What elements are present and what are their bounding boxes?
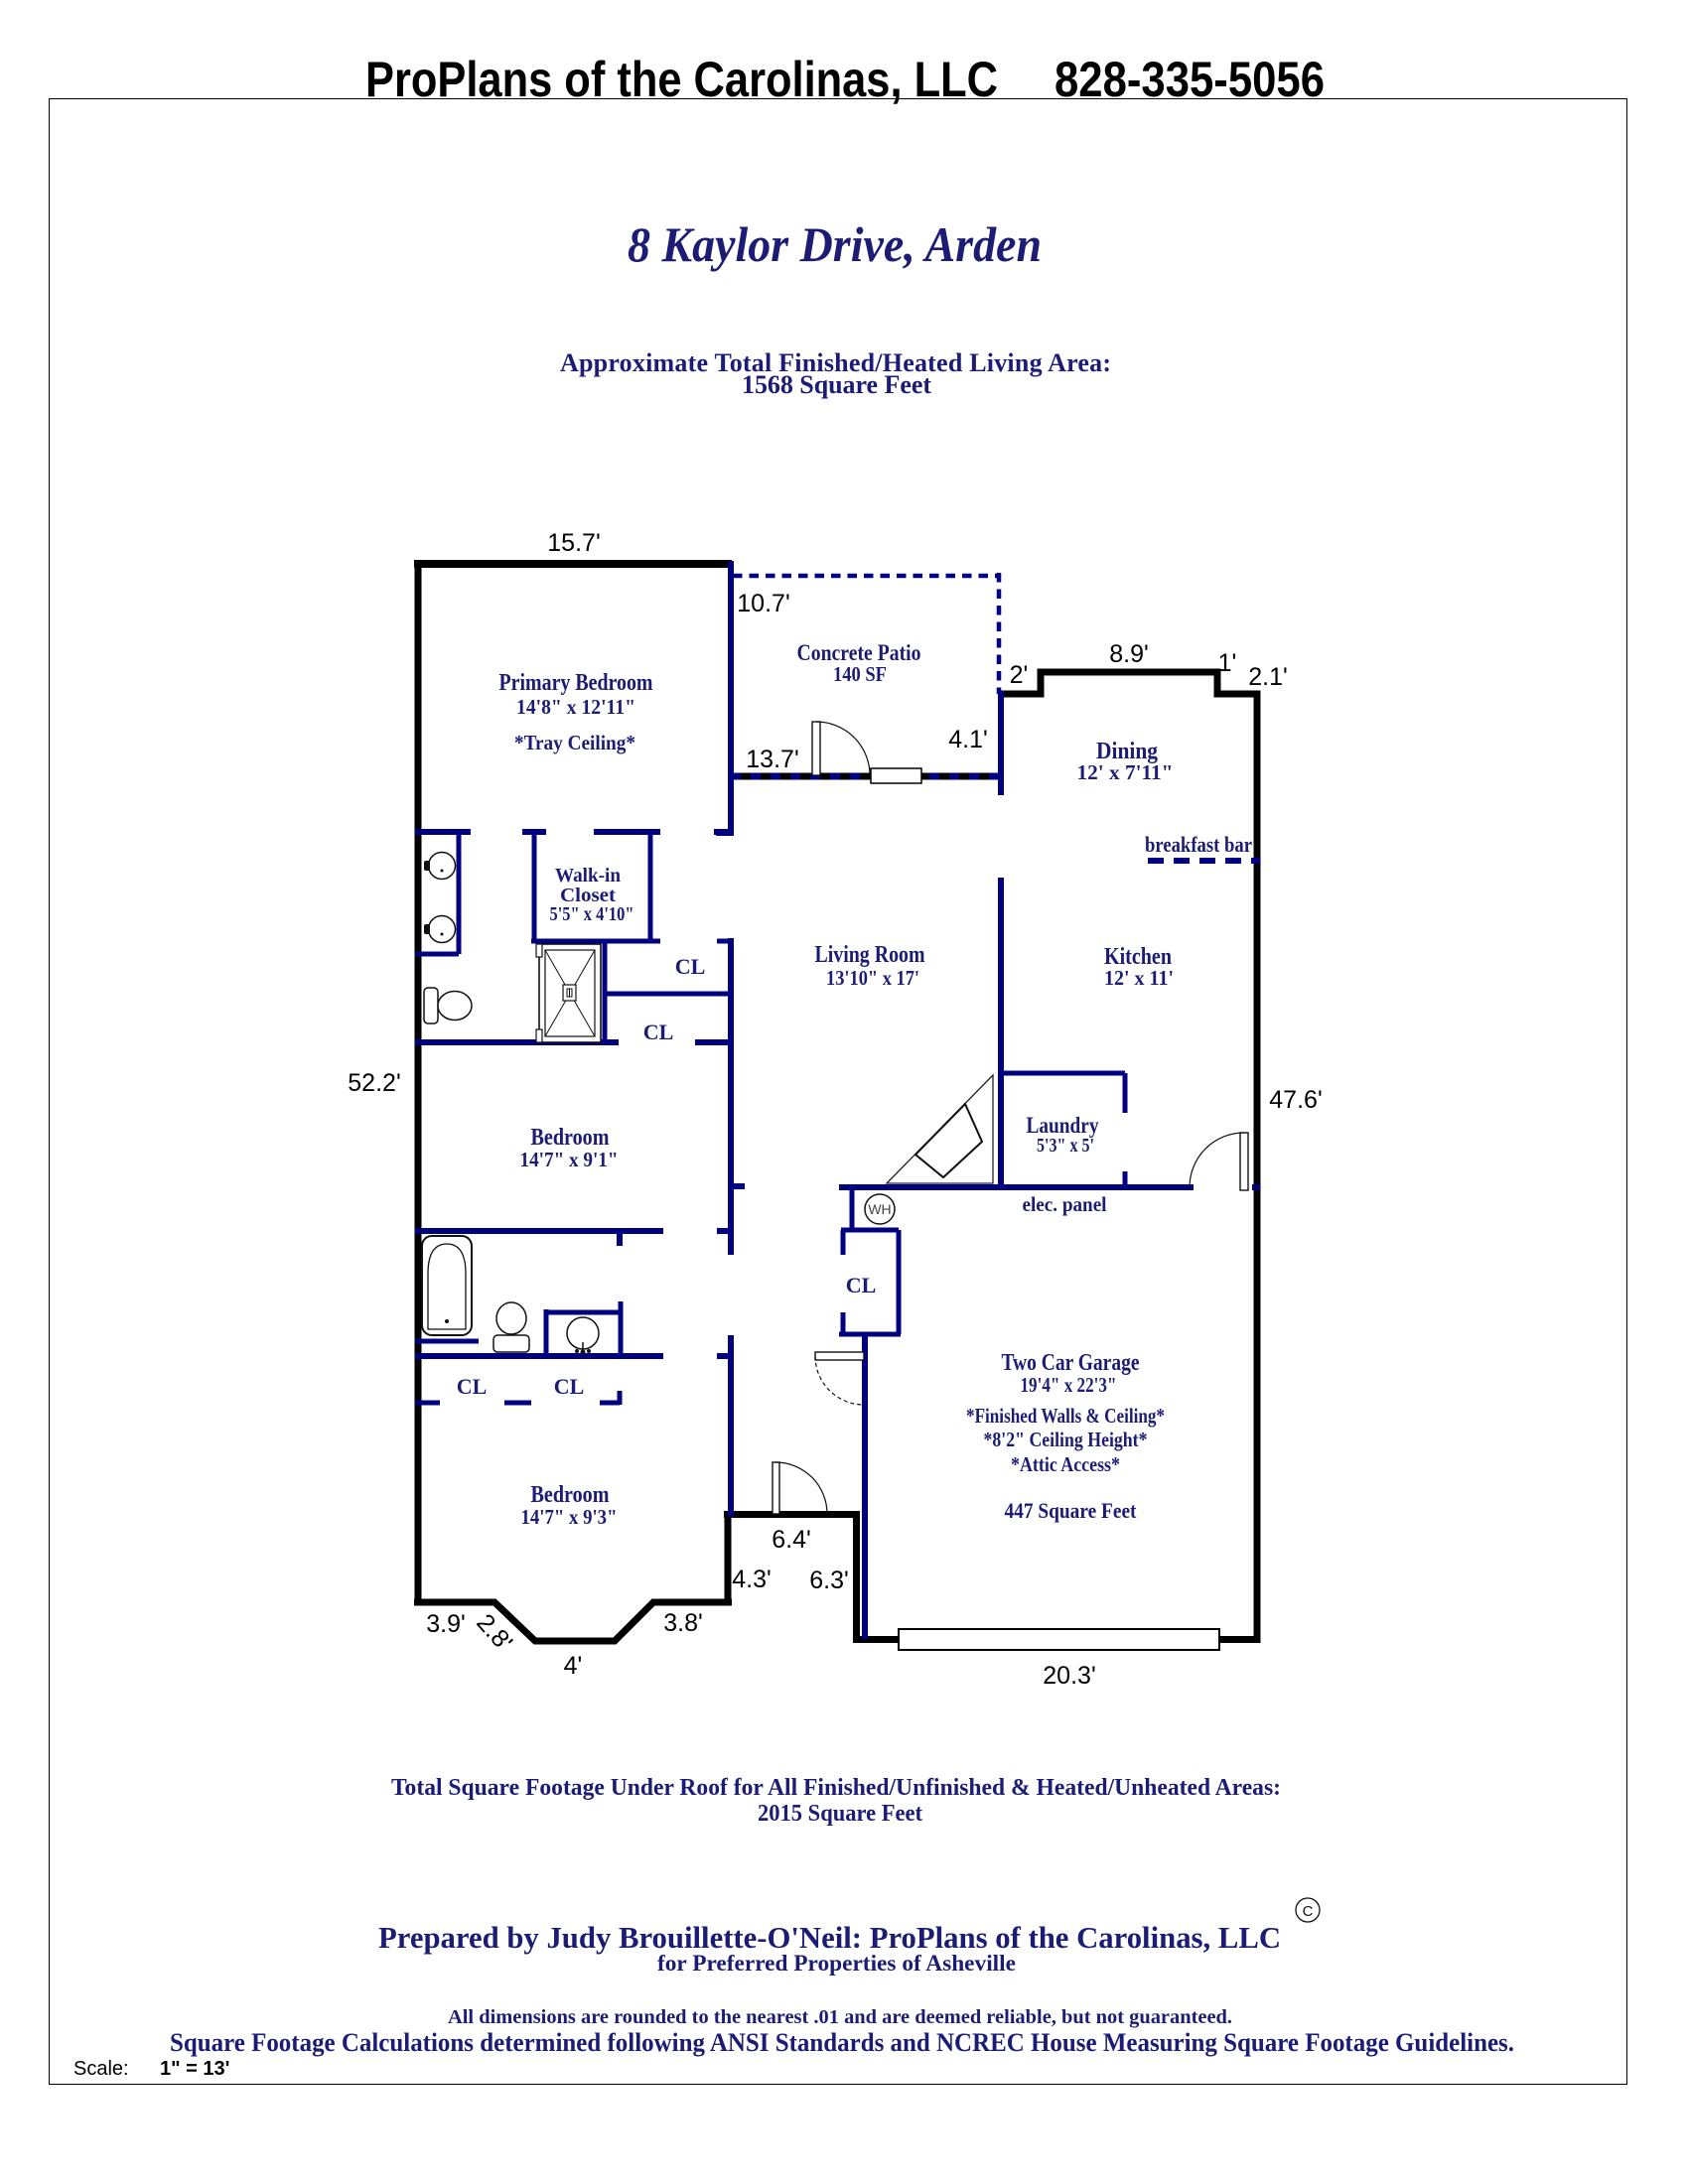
svg-text:12' x 7'11": 12' x 7'11" xyxy=(1077,760,1174,784)
svg-text:Total Square Footage Under Roo: Total Square Footage Under Roof for All … xyxy=(391,1775,1281,1801)
svg-text:47.6': 47.6' xyxy=(1269,1086,1322,1114)
svg-text:elec. panel: elec. panel xyxy=(1023,1192,1107,1216)
svg-text:*8'2" Ceiling Height*: *8'2" Ceiling Height* xyxy=(984,1428,1148,1451)
svg-text:CL: CL xyxy=(675,954,706,979)
svg-text:15.7': 15.7' xyxy=(547,529,600,557)
svg-text:Prepared by Judy Brouillette-O: Prepared by Judy Brouillette-O'Neil: Pro… xyxy=(378,1920,1281,1955)
svg-text:13.7': 13.7' xyxy=(746,746,798,773)
svg-text:5'3" x 5': 5'3" x 5' xyxy=(1037,1135,1094,1157)
svg-text:2': 2' xyxy=(1010,661,1029,689)
svg-text:14'8" x 12'11": 14'8" x 12'11" xyxy=(516,695,635,719)
svg-text:*Tray Ceiling*: *Tray Ceiling* xyxy=(514,731,635,754)
svg-text:8 Kaylor Drive, Arden: 8 Kaylor Drive, Arden xyxy=(628,216,1042,272)
svg-text:Scale:: Scale: xyxy=(73,2058,129,2080)
svg-text:C: C xyxy=(1303,1903,1314,1920)
svg-text:CL: CL xyxy=(643,1020,674,1044)
svg-text:1" = 13': 1" = 13' xyxy=(160,2058,229,2080)
svg-text:13'10" x 17': 13'10" x 17' xyxy=(826,966,919,990)
svg-text:4': 4' xyxy=(564,1652,583,1680)
svg-text:14'7" x 9'3": 14'7" x 9'3" xyxy=(521,1505,618,1529)
svg-text:14'7" x 9'1": 14'7" x 9'1" xyxy=(520,1148,619,1171)
svg-text:1568 Square Feet: 1568 Square Feet xyxy=(742,370,931,399)
svg-text:6.3': 6.3' xyxy=(809,1567,849,1594)
svg-text:447 Square Feet: 447 Square Feet xyxy=(1005,1498,1138,1523)
svg-text:140 SF: 140 SF xyxy=(833,662,887,686)
svg-text:19'4" x 22'3": 19'4" x 22'3" xyxy=(1021,1373,1117,1397)
svg-text:8.9': 8.9' xyxy=(1109,640,1149,668)
svg-text:1': 1' xyxy=(1218,649,1237,677)
svg-text:*Finished Walls & Ceiling*: *Finished Walls & Ceiling* xyxy=(966,1404,1165,1428)
svg-text:CL: CL xyxy=(457,1374,488,1399)
svg-text:CL: CL xyxy=(554,1374,585,1399)
svg-text:*Attic Access*: *Attic Access* xyxy=(1011,1452,1120,1476)
svg-text:Walk-in: Walk-in xyxy=(555,865,621,887)
svg-text:5'5" x 4'10": 5'5" x 4'10" xyxy=(550,903,634,925)
svg-text:4.3': 4.3' xyxy=(732,1566,772,1593)
svg-text:12' x 11': 12' x 11' xyxy=(1104,966,1174,990)
svg-text:breakfast bar: breakfast bar xyxy=(1145,832,1252,857)
svg-text:All dimensions are rounded to: All dimensions are rounded to the neares… xyxy=(448,2006,1232,2028)
svg-text:3.8': 3.8' xyxy=(663,1609,703,1637)
svg-text:3.9': 3.9' xyxy=(426,1610,466,1638)
svg-text:6.4': 6.4' xyxy=(772,1526,811,1554)
svg-text:CL: CL xyxy=(846,1273,877,1297)
svg-text:2015 Square Feet: 2015 Square Feet xyxy=(758,1801,922,1827)
svg-text:WH: WH xyxy=(868,1201,891,1217)
svg-text:Primary Bedroom: Primary Bedroom xyxy=(499,670,653,696)
svg-text:20.3': 20.3' xyxy=(1043,1662,1095,1690)
svg-text:for Preferred Properties of As: for Preferred Properties of Asheville xyxy=(657,1951,1016,1976)
svg-text:Living Room: Living Room xyxy=(815,942,925,968)
svg-text:2.1': 2.1' xyxy=(1248,663,1288,691)
svg-text:10.7': 10.7' xyxy=(737,590,789,617)
svg-text:52.2': 52.2' xyxy=(348,1069,400,1097)
svg-text:4.1': 4.1' xyxy=(948,726,988,753)
svg-text:Square Footage Calculations de: Square Footage Calculations determined f… xyxy=(170,2028,1514,2057)
